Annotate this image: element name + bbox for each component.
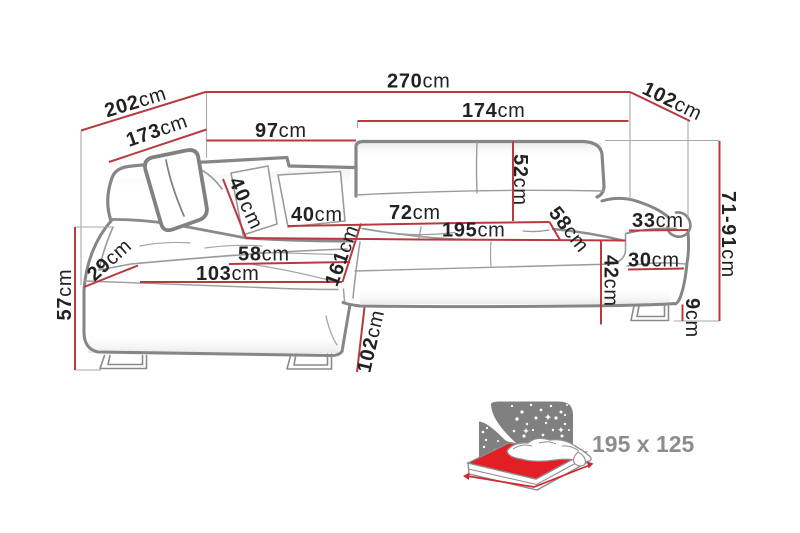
svg-text:71-91cm: 71-91cm	[717, 191, 739, 279]
svg-text:195 x 125: 195 x 125	[592, 431, 695, 457]
svg-text:103cm: 103cm	[196, 263, 260, 285]
svg-text:40cm: 40cm	[291, 204, 343, 226]
svg-text:174cm: 174cm	[462, 100, 526, 122]
svg-text:97cm: 97cm	[255, 120, 307, 142]
svg-text:52cm: 52cm	[509, 154, 531, 206]
svg-text:270cm: 270cm	[387, 71, 451, 93]
svg-text:30cm: 30cm	[628, 250, 680, 272]
svg-text:9cm: 9cm	[681, 298, 703, 338]
svg-text:42cm: 42cm	[600, 255, 622, 307]
svg-text:33cm: 33cm	[632, 210, 684, 232]
svg-text:102cm: 102cm	[353, 308, 389, 375]
svg-text:102cm: 102cm	[639, 78, 706, 126]
svg-text:72cm: 72cm	[389, 202, 441, 224]
svg-text:57cm: 57cm	[54, 269, 76, 321]
svg-text:202cm: 202cm	[102, 83, 169, 123]
svg-text:195cm: 195cm	[442, 220, 506, 242]
